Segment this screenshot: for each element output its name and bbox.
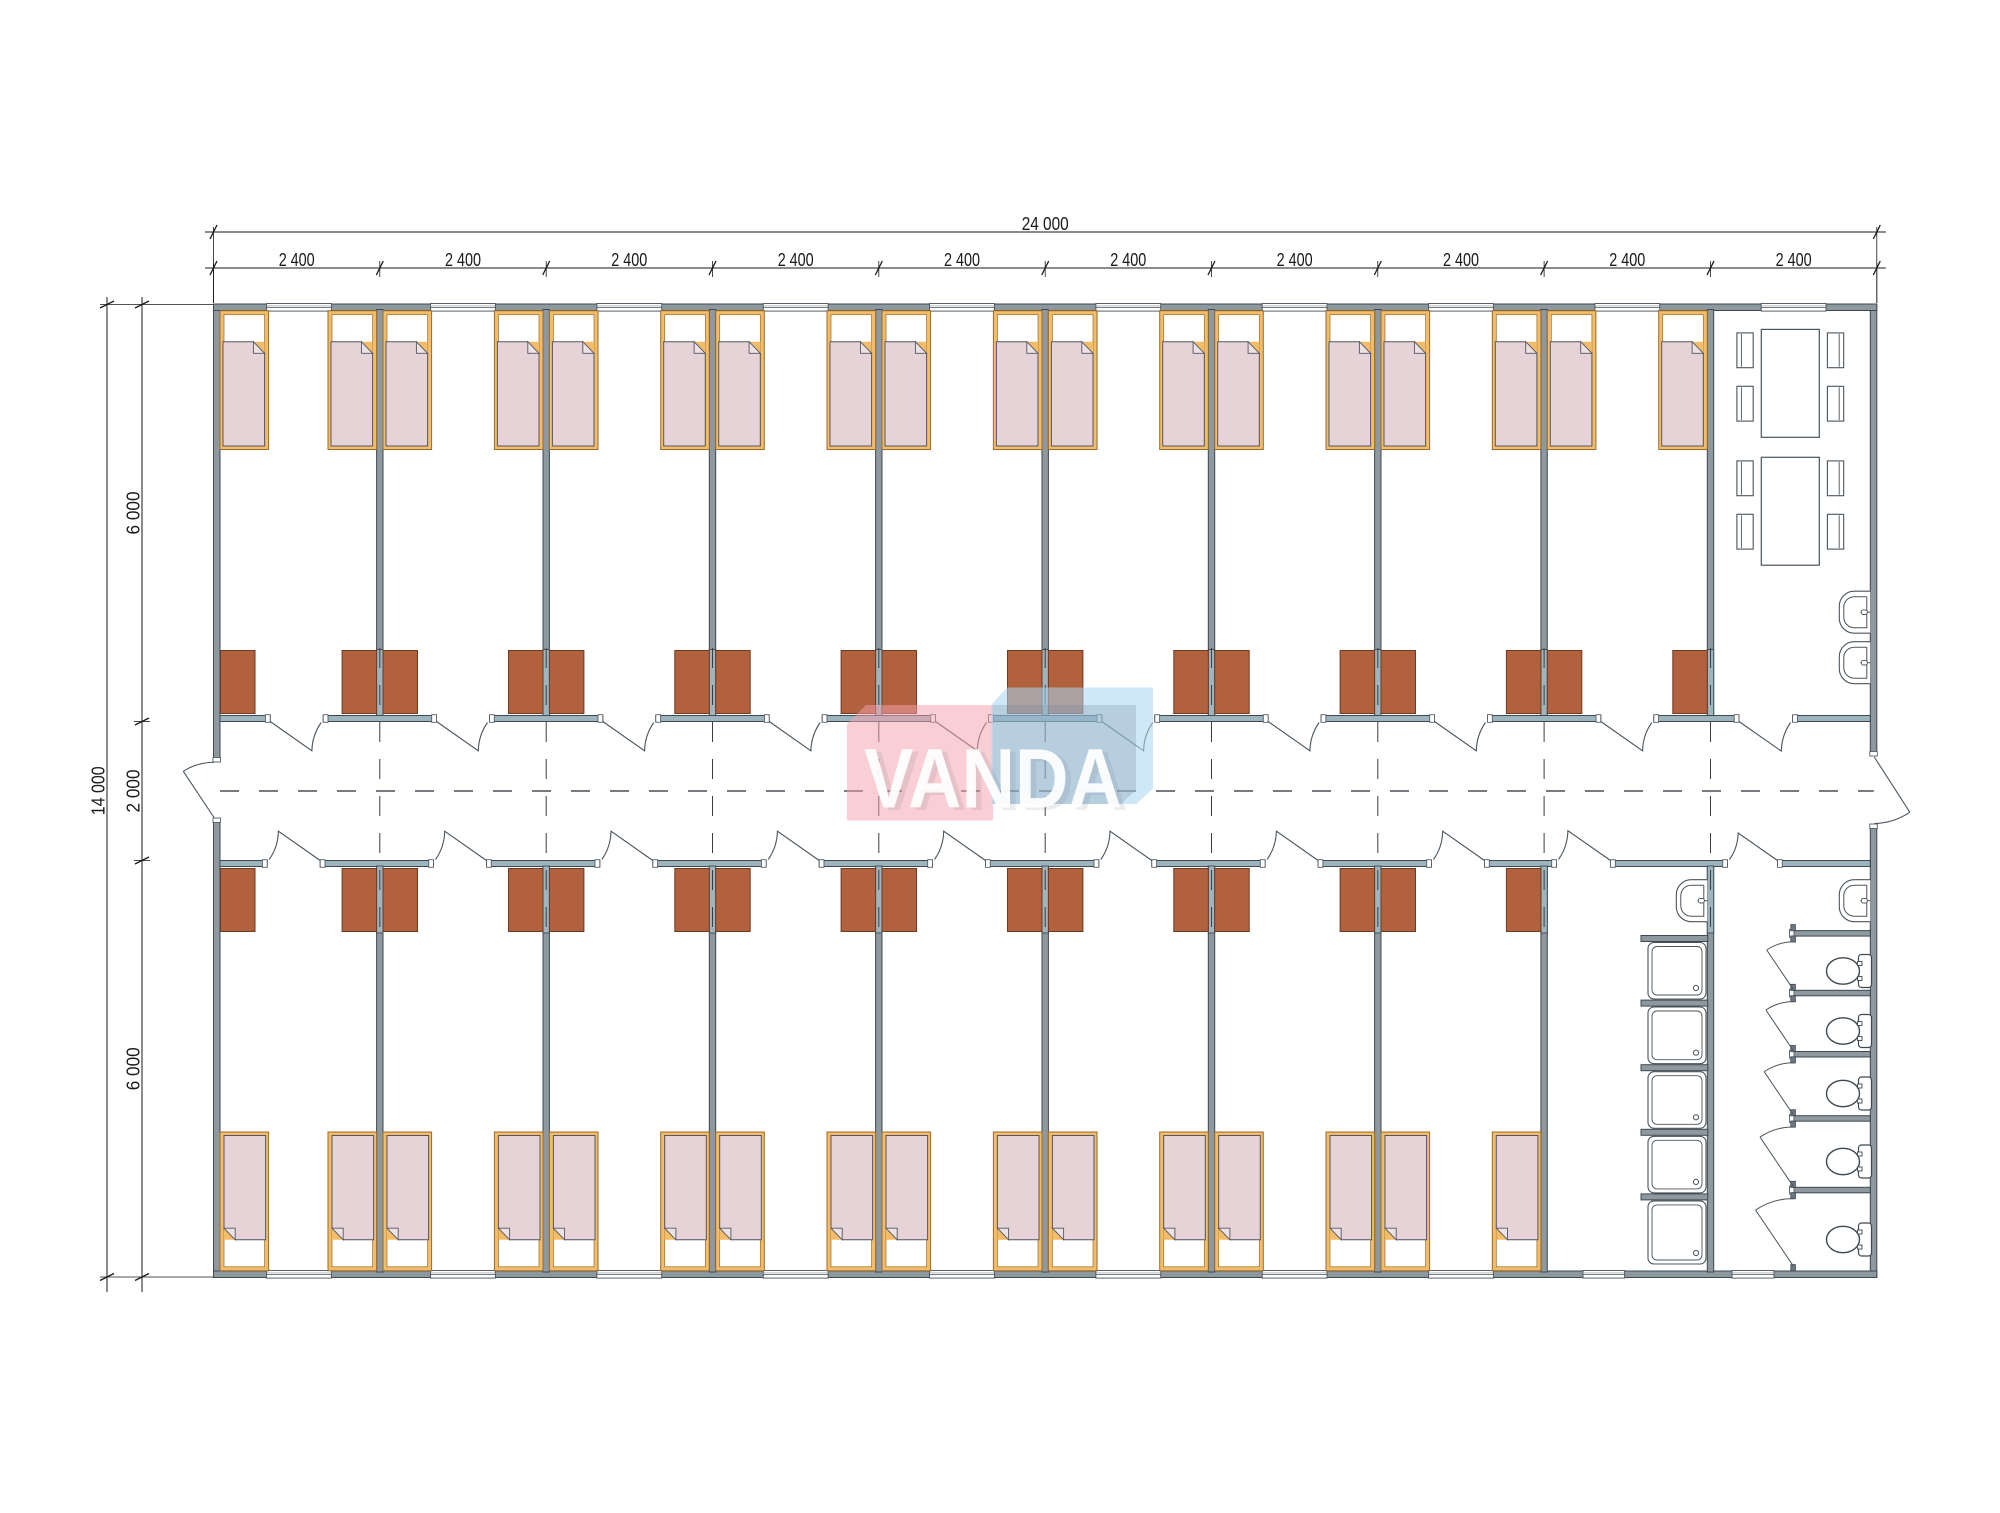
svg-text:14 000: 14 000 [89, 766, 109, 815]
svg-text:2 400: 2 400 [1110, 250, 1146, 270]
svg-text:2 400: 2 400 [1277, 250, 1313, 270]
svg-text:2 400: 2 400 [944, 250, 980, 270]
svg-text:2 400: 2 400 [778, 250, 814, 270]
svg-text:24 000: 24 000 [1022, 214, 1069, 234]
svg-text:2 400: 2 400 [1443, 250, 1479, 270]
svg-text:2 400: 2 400 [445, 250, 481, 270]
svg-text:6 000: 6 000 [124, 1047, 144, 1090]
svg-text:VANDA: VANDA [864, 732, 1122, 826]
svg-text:2 400: 2 400 [1609, 250, 1645, 270]
svg-text:2 400: 2 400 [611, 250, 647, 270]
svg-text:2 000: 2 000 [124, 770, 144, 813]
svg-text:2 400: 2 400 [279, 250, 315, 270]
svg-text:2 400: 2 400 [1776, 250, 1812, 270]
svg-text:6 000: 6 000 [124, 492, 144, 535]
